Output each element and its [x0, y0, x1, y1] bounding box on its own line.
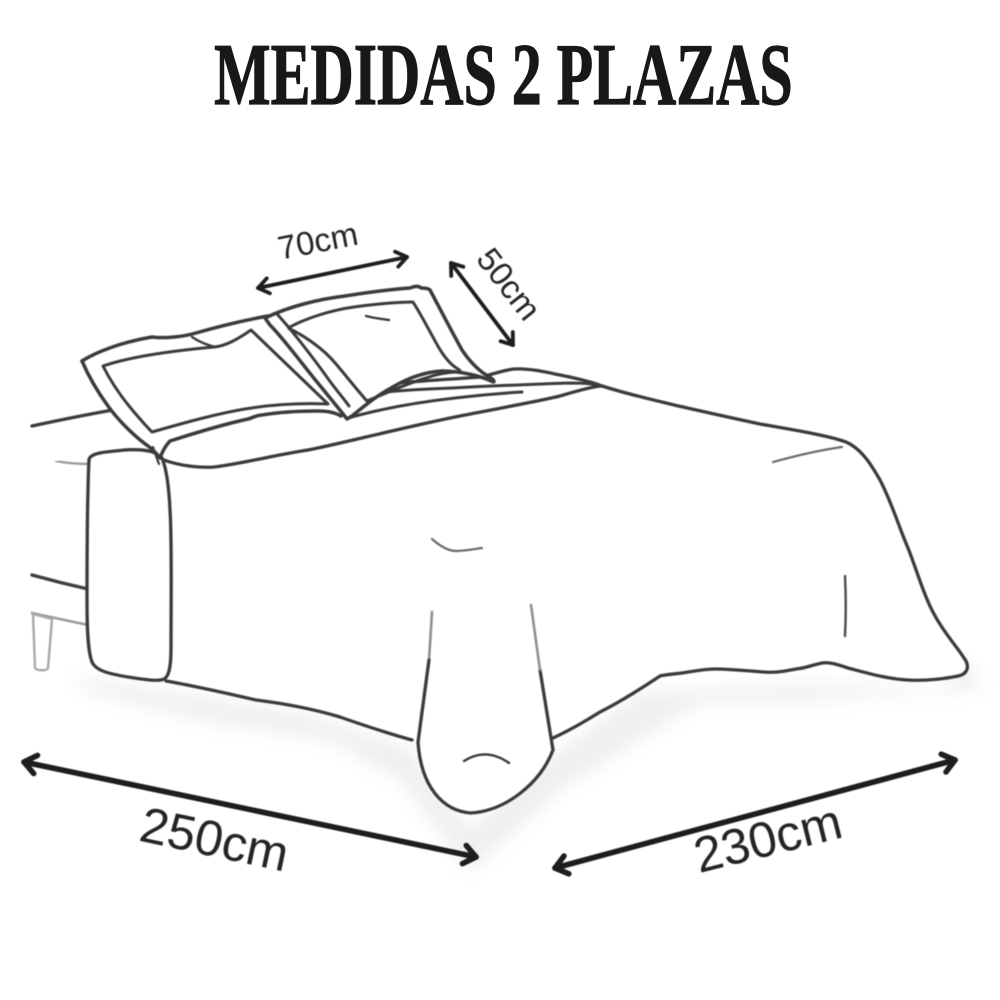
svg-text:70cm: 70cm	[275, 215, 361, 267]
svg-text:230cm: 230cm	[688, 793, 847, 884]
svg-text:250cm: 250cm	[135, 796, 293, 882]
svg-text:50cm: 50cm	[470, 241, 549, 327]
